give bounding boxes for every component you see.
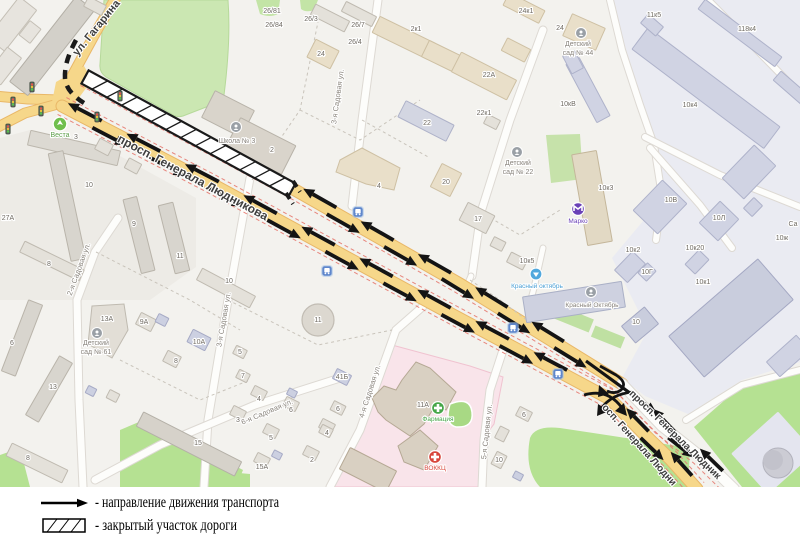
svg-text:10к4: 10к4 xyxy=(683,102,698,109)
svg-text:10к5: 10к5 xyxy=(520,258,535,265)
svg-text:17: 17 xyxy=(474,216,482,223)
svg-text:10: 10 xyxy=(85,182,93,189)
svg-text:13: 13 xyxy=(49,384,57,391)
svg-text:5: 5 xyxy=(269,435,273,442)
svg-text:6: 6 xyxy=(336,406,340,413)
svg-text:26/84: 26/84 xyxy=(265,22,283,29)
svg-text:24: 24 xyxy=(317,51,325,58)
svg-text:10В: 10В xyxy=(665,197,678,204)
svg-text:7: 7 xyxy=(241,373,245,380)
svg-text:Детский: Детский xyxy=(505,159,531,167)
svg-text:6: 6 xyxy=(10,340,14,347)
svg-text:2к1: 2к1 xyxy=(411,26,422,33)
svg-text:26/7: 26/7 xyxy=(351,22,365,29)
svg-text:11к5: 11к5 xyxy=(647,12,661,19)
svg-text:10к3: 10к3 xyxy=(599,185,614,192)
svg-text:10к20: 10к20 xyxy=(686,245,705,252)
svg-text:10Г: 10Г xyxy=(641,269,653,276)
svg-text:118к4: 118к4 xyxy=(738,26,756,33)
svg-text:10кВ: 10кВ xyxy=(560,101,576,108)
svg-text:27А: 27А xyxy=(2,215,15,222)
svg-text:2: 2 xyxy=(270,147,274,154)
svg-text:10Л: 10Л xyxy=(713,215,726,222)
svg-text:10ж: 10ж xyxy=(776,235,789,242)
svg-text:10: 10 xyxy=(225,278,233,285)
svg-text:8: 8 xyxy=(174,358,178,365)
svg-text:9: 9 xyxy=(132,221,136,228)
svg-text:10к2: 10к2 xyxy=(626,247,641,254)
svg-text:11: 11 xyxy=(314,317,321,324)
svg-text:Са: Са xyxy=(788,221,797,228)
svg-text:3: 3 xyxy=(236,417,240,424)
svg-text:5: 5 xyxy=(238,349,242,356)
svg-text:4: 4 xyxy=(257,396,261,403)
svg-text:8: 8 xyxy=(47,261,51,268)
svg-text:24к1: 24к1 xyxy=(519,8,534,15)
svg-text:Детский: Детский xyxy=(565,40,591,48)
svg-text:26/3: 26/3 xyxy=(304,16,318,23)
svg-text:26/4: 26/4 xyxy=(348,39,362,46)
svg-text:13А: 13А xyxy=(101,316,114,323)
svg-text:26/81: 26/81 xyxy=(263,8,281,15)
svg-text:Веста: Веста xyxy=(50,132,69,139)
svg-text:41Б: 41Б xyxy=(336,374,349,381)
svg-text:22: 22 xyxy=(423,120,431,127)
svg-text:3: 3 xyxy=(74,134,78,141)
svg-text:- направление движения транспо: - направление движения транспорта xyxy=(95,494,279,511)
svg-text:10: 10 xyxy=(495,457,503,464)
svg-text:10: 10 xyxy=(632,319,640,326)
svg-text:сад № 61: сад № 61 xyxy=(81,349,112,356)
svg-text:22к1: 22к1 xyxy=(477,110,492,117)
svg-text:11: 11 xyxy=(176,253,183,260)
svg-text:6: 6 xyxy=(522,412,526,419)
svg-text:Красный Октябрь: Красный Октябрь xyxy=(565,301,619,309)
svg-text:сад № 44: сад № 44 xyxy=(563,50,594,57)
svg-text:24: 24 xyxy=(556,25,564,32)
svg-text:4: 4 xyxy=(377,183,381,190)
svg-text:6: 6 xyxy=(289,407,293,414)
svg-text:10к1: 10к1 xyxy=(696,279,711,286)
svg-text:10А: 10А xyxy=(193,339,206,346)
svg-text:9А: 9А xyxy=(140,319,149,326)
svg-text:15: 15 xyxy=(194,440,202,447)
svg-text:20: 20 xyxy=(442,179,450,186)
svg-text:15А: 15А xyxy=(256,464,269,471)
svg-text:сад № 22: сад № 22 xyxy=(503,169,534,176)
svg-text:Марко: Марко xyxy=(568,218,588,225)
svg-text:22А: 22А xyxy=(483,72,496,79)
svg-text:ВОККЦ: ВОККЦ xyxy=(424,465,446,472)
svg-text:Красный октябрь: Красный октябрь xyxy=(511,282,563,290)
svg-text:8: 8 xyxy=(26,455,30,462)
svg-text:- закрытый участок дороги: - закрытый участок дороги xyxy=(95,517,237,534)
svg-text:2: 2 xyxy=(310,457,314,464)
svg-text:4: 4 xyxy=(325,430,329,437)
svg-text:Школа № 3: Школа № 3 xyxy=(219,138,256,145)
svg-text:11А: 11А xyxy=(417,402,429,409)
svg-text:Фармация: Фармация xyxy=(422,416,454,423)
svg-text:Детский: Детский xyxy=(83,339,109,347)
